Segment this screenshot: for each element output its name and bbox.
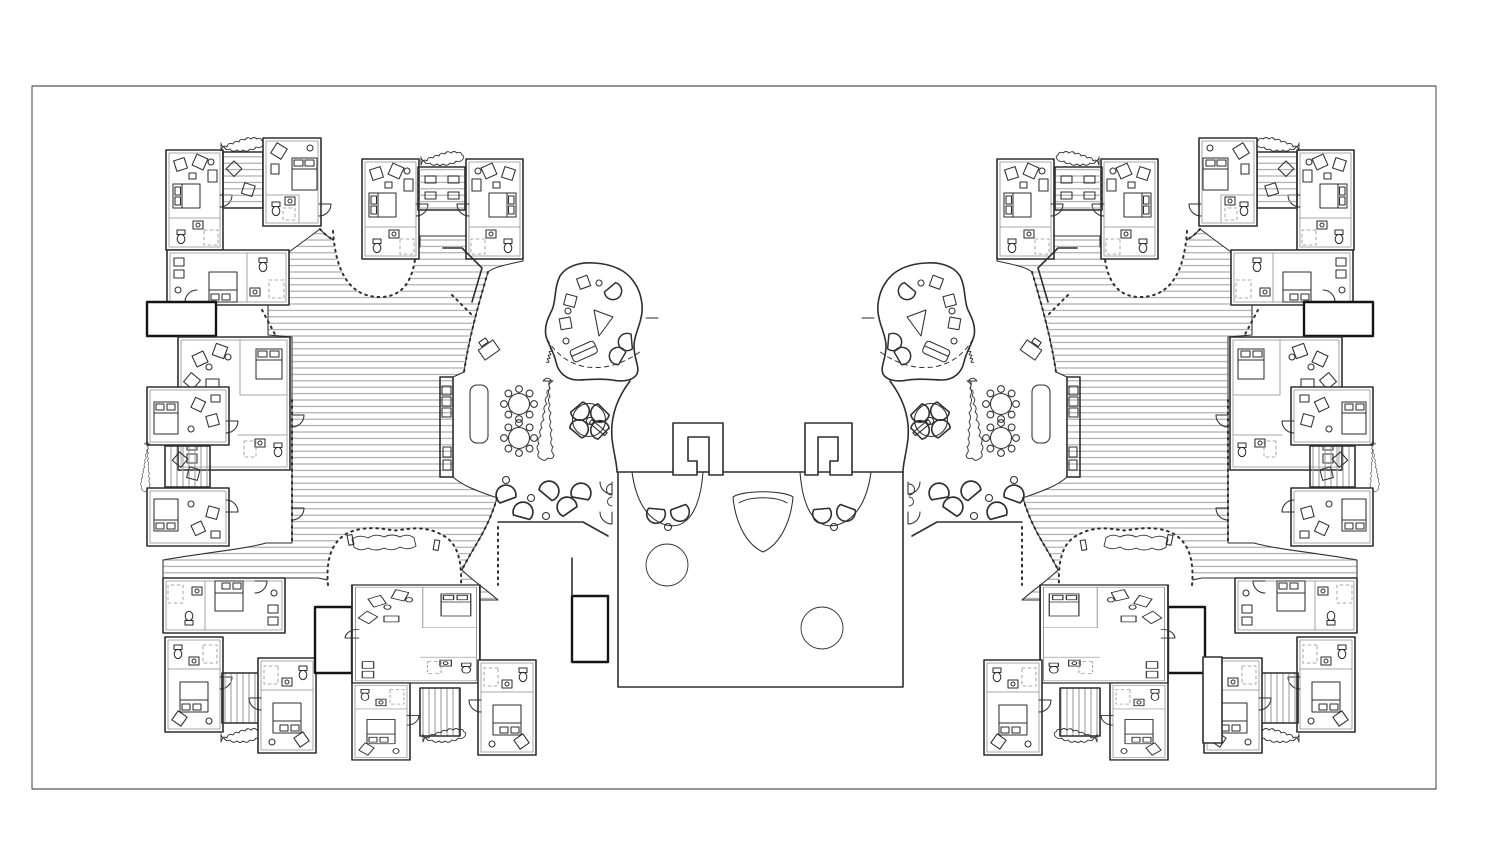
- apartment-cluster-west: [141, 302, 304, 546]
- stair-core: [147, 302, 216, 336]
- west-wing: [141, 138, 643, 760]
- counter-icon: [470, 385, 488, 443]
- scatter-seats: [493, 477, 592, 520]
- east-wing: [878, 138, 1380, 760]
- shared-patio: [223, 152, 263, 208]
- annex-room: [572, 596, 608, 662]
- annex-room-east: [1203, 657, 1222, 743]
- desk-with-chair: [475, 335, 500, 360]
- blob-common-room: [543, 263, 642, 381]
- stair-core-left: [673, 423, 723, 475]
- floor-plan: Symmetric twin-wing residential floor pl…: [0, 0, 1500, 844]
- stair-core: [315, 607, 352, 673]
- bench-niche: [328, 528, 462, 585]
- floor-plan-page: Symmetric twin-wing residential floor pl…: [0, 0, 1500, 844]
- stair-core-right: [805, 423, 852, 475]
- shared-patio: [165, 446, 210, 487]
- s-wall: [612, 381, 630, 472]
- apartment-cluster-southwest: [163, 578, 536, 760]
